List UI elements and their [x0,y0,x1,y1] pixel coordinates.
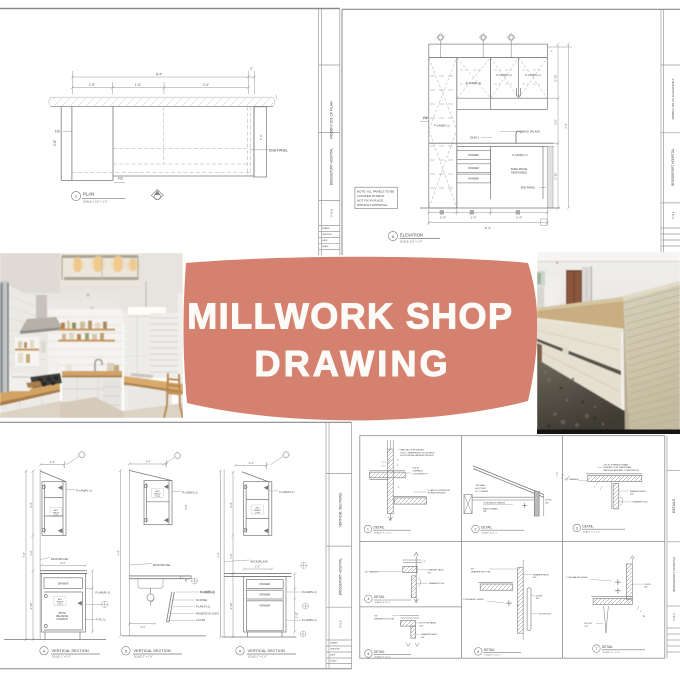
svg-text:(TYP): (TYP) [255,513,261,515]
svg-text:1'-9": 1'-9" [89,83,95,87]
svg-text:2'-10": 2'-10" [554,172,558,179]
svg-text:1'-4": 1'-4" [248,461,253,465]
svg-text:DETAILS: DETAILS [672,498,676,513]
svg-text:SCALE: 1" = 1'-0": SCALE: 1" = 1'-0" [248,656,267,659]
svg-text:SCALE: 3" = 1'-0": SCALE: 3" = 1'-0" [374,531,391,534]
svg-text:P-LAM(PL-1): P-LAM(PL-1) [77,489,92,493]
svg-text:DRAWER BOTTOM: DRAWER BOTTOM [374,617,394,620]
svg-text:VERTICAL SECTION: VERTICAL SECTION [52,648,89,653]
svg-text:SCALE: 1" = 1'-0": SCALE: 1" = 1'-0" [52,656,71,659]
svg-text:BY OTHERS: BY OTHERS [475,491,488,493]
svg-text:BRIDGEPORT HOSPITAL: BRIDGEPORT HOSPITAL [672,556,676,592]
svg-text:1'-2": 1'-2" [229,553,233,558]
svg-text:P-LAM(PL-1): P-LAM(PL-1) [466,81,481,85]
svg-text:DETAIL: DETAIL [602,645,613,649]
svg-text:INTERIOR: INTERIOR [57,619,68,621]
svg-text:5: 5 [367,652,369,656]
svg-text:ELEVATION: ELEVATION [400,233,423,238]
svg-text:PAN SECTION WEIGHT: PAN SECTION WEIGHT [400,449,425,452]
svg-text:(TYP): (TYP) [155,496,161,498]
svg-text:P-LAM(PL-1): P-LAM(PL-1) [200,591,215,594]
svg-text:P-LAM(PL-1): P-LAM(PL-1) [302,619,317,622]
svg-text:3/4": 3/4" [533,577,537,579]
svg-text:DRAWER PULL: DRAWER PULL [429,582,446,585]
svg-text:F-6.1: F-6.1 [671,211,675,218]
svg-text:P-LAM(PL-1): P-LAM(PL-1) [96,591,111,594]
svg-text:3/4": 3/4" [630,494,634,496]
svg-text:DRAWER FACE: DRAWER FACE [421,633,438,636]
svg-text:2'-10": 2'-10" [554,74,558,81]
svg-text:MOUNTED W/ CLEAT: MOUNTED W/ CLEAT [196,612,220,615]
svg-text:1'-6": 1'-6" [554,119,558,125]
svg-text:8'-4": 8'-4" [485,226,491,230]
svg-text:2'-1": 2'-1" [60,561,65,565]
svg-text:3/4": 3/4" [483,511,487,513]
svg-text:2": 2" [250,67,253,71]
svg-text:SOLID: SOLID [412,468,419,470]
svg-text:1/2" DRAWER: 1/2" DRAWER [365,571,379,574]
svg-text:3/4": 3/4" [545,502,549,504]
svg-text:P-LAM(PL-1): P-LAM(PL-1) [279,490,294,494]
svg-text:1'-2": 1'-2" [29,550,33,555]
svg-text:1'-2": 1'-2" [259,134,263,140]
svg-text:7'-4": 7'-4" [117,550,121,555]
svg-text:P-LAM COUNTERTOP: P-LAM COUNTERTOP [428,489,451,492]
svg-text:DRAWER: DRAWER [260,594,271,597]
svg-text:DRAWER PULL: DRAWER PULL [632,501,649,504]
svg-text:2'-4": 2'-4" [229,502,233,507]
svg-text:DRAWING: DRAWING [255,343,451,384]
svg-text:P-LAM(PL-1): P-LAM(PL-1) [496,73,511,77]
svg-text:SCALE: 6"=1'-0": SCALE: 6"=1'-0" [484,654,500,657]
svg-text:4" (PL-1): 4" (PL-1) [96,619,106,622]
svg-text:1'-10": 1'-10" [296,612,299,618]
svg-text:DETAIL: DETAIL [374,650,385,654]
svg-text:SCALE: 6"=1'-0": SCALE: 6"=1'-0" [482,531,498,534]
svg-text:4: 4 [43,649,45,653]
svg-text:SCALE: SCALE [330,660,337,663]
svg-text:P-LAM(PL-1): P-LAM(PL-1) [512,153,527,157]
svg-text:DOOR PULL: DOOR PULL [539,614,552,616]
svg-text:2'-4": 2'-4" [29,502,33,507]
svg-text:VERTICAL SECTION: VERTICAL SECTION [133,648,170,653]
svg-text:BOTTOM PANEL: BOTTOM PANEL [420,622,438,625]
svg-text:CONCEALED HANGS: CONCEALED HANGS [483,502,506,505]
svg-text:BACK SPLASH: BACK SPLASH [522,130,540,134]
svg-text:SCALE: 1" = 1'-0": SCALE: 1" = 1'-0" [134,656,153,659]
svg-text:CHECKED: CHECKED [330,649,340,651]
svg-text:DRAWER BOTTOM: DRAWER BOTTOM [471,571,491,574]
svg-text:DETAIL: DETAIL [484,648,495,652]
svg-text:2'-1": 2'-1" [140,625,145,629]
svg-text:2'-1": 2'-1" [255,565,260,569]
svg-text:DETAIL: DETAIL [582,524,593,528]
svg-text:8'-4": 8'-4" [156,73,162,77]
svg-text:END PANEL: END PANEL [521,185,536,189]
svg-text:SCALE: 3" = 1'-0": SCALE: 3" = 1'-0" [583,530,600,533]
svg-text:BACKSPLASH: BACKSPLASH [153,563,170,567]
svg-text:DRAWER FACE: DRAWER FACE [533,573,550,576]
svg-text:BACKSPLASH AND COUNTERTOP: BACKSPLASH AND COUNTERTOP [604,469,640,472]
svg-text:BACKSPLASH: BACKSPLASH [251,560,268,564]
svg-text:CONCEALED HINGE: CONCEALED HINGE [566,576,588,579]
svg-text:DATE: DATE [322,239,328,242]
svg-text:SURFACE: SURFACE [412,470,423,473]
svg-text:DOOR: DOOR [644,584,651,586]
svg-text:1": 1" [640,611,642,613]
svg-text:VERTICAL SECTION: VERTICAL SECTION [248,648,285,653]
svg-text:F-6.2: F-6.2 [339,620,343,627]
svg-text:7'-4": 7'-4" [22,552,26,557]
svg-text:3/4": 3/4" [428,572,432,574]
svg-text:CONCEALED HINGE: CONCEALED HINGE [463,598,485,601]
svg-text:CHECKED: CHECKED [322,234,332,236]
svg-text:VERTICAL SECTIONS: VERTICAL SECTIONS [339,492,343,527]
svg-text:FIN. WALL: FIN. WALL [475,484,486,487]
svg-text:DOOR: DOOR [536,595,543,597]
svg-text:SCALE: 1/2" = 1'-0": SCALE: 1/2" = 1'-0" [400,240,423,244]
svg-text:F-6.3: F-6.3 [672,613,676,620]
svg-text:1'-6": 1'-6" [135,83,141,87]
svg-text:P-LAM (PL-1): P-LAM (PL-1) [196,606,210,609]
svg-text:MILLWORK SHOP: MILLWORK SHOP [187,296,513,337]
svg-text:WITHOUT APPROVAL: WITHOUT APPROVAL [357,203,388,207]
svg-text:DETAIL: DETAIL [374,595,385,599]
svg-text:LOCATED IN FIELD.: LOCATED IN FIELD. [357,194,385,198]
svg-text:1: 1 [75,194,78,199]
svg-text:1'-4": 1'-4" [50,460,55,464]
svg-text:7'-4": 7'-4" [564,123,568,129]
svg-text:6: 6 [239,649,241,653]
svg-text:7'-0": 7'-0" [423,117,428,120]
svg-text:BACKSPLASH: BACKSPLASH [51,557,68,561]
svg-text:1": 1" [594,487,596,489]
svg-text:3": 3" [398,487,400,489]
svg-text:BLOCK: BLOCK [585,623,593,625]
svg-text:1'-4": 1'-4" [145,460,150,464]
svg-text:7'-4": 7'-4" [217,552,221,557]
svg-text:2'-4": 2'-4" [203,83,209,87]
svg-text:5: 5 [125,649,127,653]
svg-text:KNEE SPACE: KNEE SPACE [511,167,528,171]
svg-text:F.B: F.B [118,177,123,181]
svg-text:DRAWER FACE: DRAWER FACE [428,569,445,572]
svg-text:1": 1" [397,460,399,462]
svg-text:P-LAM(PL-1): P-LAM(PL-1) [525,73,540,77]
svg-text:DETAIL: DETAIL [374,525,385,529]
svg-text:7: 7 [595,647,597,651]
svg-text:3/4": 3/4" [421,637,425,639]
svg-text:4: 4 [367,597,369,601]
svg-text:1/2" DRAWER: 1/2" DRAWER [564,478,578,481]
svg-text:ALCOVED: ALCOVED [475,487,486,490]
svg-text:SCALE: 3" = 1'-0": SCALE: 3" = 1'-0" [603,651,620,654]
svg-text:1": 1" [556,473,558,475]
svg-text:SCALE: 6"=1'-0": SCALE: 6"=1'-0" [375,656,391,659]
svg-text:DRAWN: DRAWN [322,227,330,230]
svg-text:DRAWER: DRAWER [468,167,479,170]
svg-text:F-6.0: F-6.0 [330,209,334,216]
svg-text:DRAWER FACE: DRAWER FACE [630,490,647,493]
svg-text:1: 1 [367,527,369,531]
svg-text:(TYP): (TYP) [57,604,63,606]
svg-text:COUNTERTOP: COUNTERTOP [412,473,428,475]
svg-text:MELAMINE: MELAMINE [56,615,68,618]
svg-text:BRIDGEPORT HOSPITAL: BRIDGEPORT HOSPITAL [330,148,334,186]
svg-text:DATE: DATE [330,654,336,657]
svg-text:3/4": 3/4" [420,626,424,628]
svg-text:2'-10": 2'-10" [29,603,33,610]
svg-text:2'-4": 2'-4" [516,216,522,220]
svg-text:2": 2" [397,465,399,467]
svg-text:3/4": 3/4" [644,587,648,589]
svg-text:C-CLIPS: C-CLIPS [196,620,206,622]
svg-text:ROOM # 301 CF ELEVATION A: ROOM # 301 CF ELEVATION A [671,79,675,120]
svg-text:BACKS PANEL: BACKS PANEL [483,507,499,510]
svg-text:6: 6 [477,650,479,654]
svg-text:REMOVABLE: REMOVABLE [511,171,527,175]
svg-text:P-LAM(PL-1): P-LAM(PL-1) [182,490,197,494]
svg-text:DRAWER: DRAWER [468,154,479,157]
svg-text:F.B: F.B [55,129,60,133]
svg-text:DASH 1: DASH 1 [470,135,480,139]
svg-text:HOOK: HOOK [545,500,552,502]
svg-text:NO PANEL: NO PANEL [196,599,208,602]
svg-text:DETAIL: DETAIL [481,525,492,529]
svg-text:3: 3 [576,526,578,530]
svg-text:END PANEL: END PANEL [269,148,288,152]
svg-text:DRAWER: DRAWER [260,583,271,586]
svg-text:DRAWER: DRAWER [468,178,479,181]
svg-text:3/4": 3/4" [471,569,475,571]
svg-text:3/4": 3/4" [374,616,378,618]
svg-text:DRAWER: DRAWER [260,604,271,607]
svg-text:E: E [643,615,645,618]
svg-text:2: 2 [475,527,477,531]
svg-text:WHITE: WHITE [58,613,66,615]
svg-text:3/4": 3/4" [585,626,589,628]
svg-text:P-LAM(PL-1): P-LAM(PL-1) [302,591,317,594]
svg-text:NOT FIX IN PLACE: NOT FIX IN PLACE [357,199,383,203]
svg-text:ROOM # 301 CF PLAN: ROOM # 301 CF PLAN [330,101,334,139]
svg-text:2'-10": 2'-10" [229,603,233,610]
svg-text:1": 1" [424,561,426,563]
svg-text:2": 2" [562,475,564,477]
svg-text:BRIDGEPORT HOSPITAL: BRIDGEPORT HOSPITAL [671,148,675,186]
svg-text:SCALE: 1 1/2" = 1'-0": SCALE: 1 1/2" = 1'-0" [83,199,108,203]
svg-text:BRIDGEPORT HOSPITAL: BRIDGEPORT HOSPITAL [339,558,343,596]
svg-text:P-LAM(PL-1): P-LAM(PL-1) [434,124,449,128]
svg-text:3'-0": 3'-0" [184,504,188,509]
svg-text:HIDDEN COW CHRISTMAS: HIDDEN COW CHRISTMAS [604,466,632,469]
svg-text:4": 4" [551,51,553,53]
svg-text:3/4": 3/4" [536,598,540,600]
svg-text:DRAWER: DRAWER [58,582,69,585]
svg-text:A: A [392,234,395,239]
svg-text:DRAWN: DRAWN [330,642,338,645]
svg-text:PLAN: PLAN [83,191,94,196]
svg-text:SCALE: 6"=1'-0": SCALE: 6"=1'-0" [375,601,391,604]
svg-text:FULLY TRAVERSED 3/4" SLEEVE: FULLY TRAVERSED 3/4" SLEEVE [400,451,434,454]
svg-text:SOLID SURFACE DRAW: SOLID SURFACE DRAW [604,463,630,466]
svg-text:W/ BACKSPLASH: W/ BACKSPLASH [428,492,446,495]
svg-text:(TYP): (TYP) [53,515,59,517]
svg-text:1'-6": 1'-6" [471,216,477,220]
svg-text:2'-6": 2'-6" [53,140,57,146]
svg-text:BLOCKING ALUMINUM PROFILE: BLOCKING ALUMINUM PROFILE [400,454,434,457]
svg-text:1'-9": 1'-9" [440,216,446,220]
svg-text:NOTE: ALL PANELS TO BE: NOTE: ALL PANELS TO BE [357,189,394,193]
